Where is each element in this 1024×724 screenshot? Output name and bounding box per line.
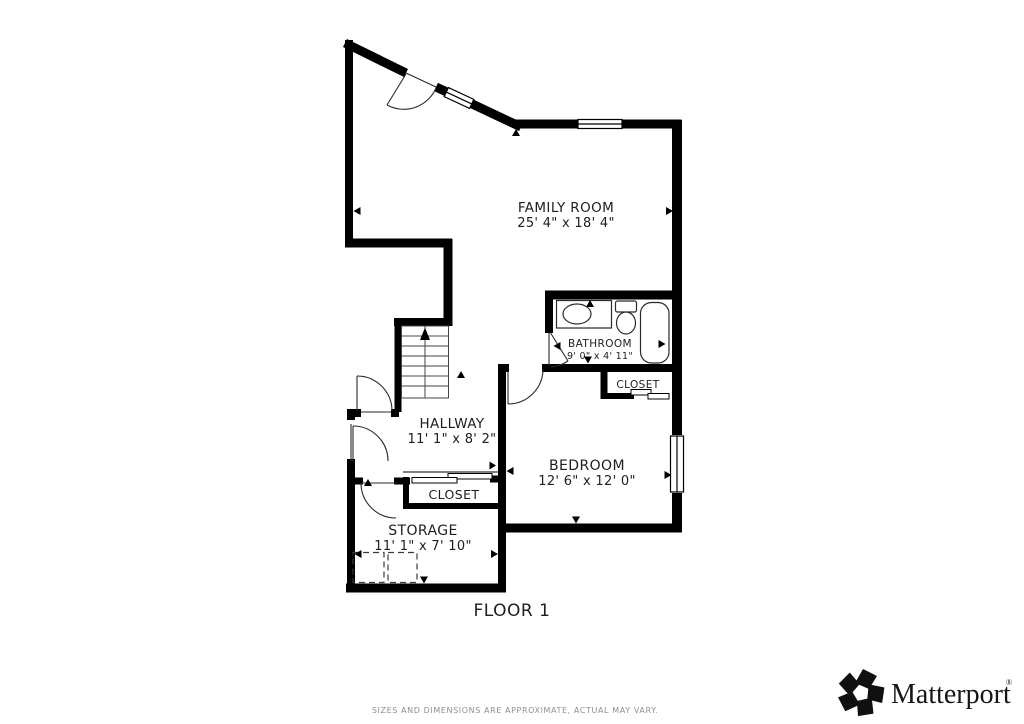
toilet-icon: [616, 301, 637, 334]
doors: [351, 73, 568, 518]
sliding-door-icon-hall-closet: [403, 472, 500, 483]
disclaimer-text: SIZES AND DIMENSIONS ARE APPROXIMATE, AC…: [372, 706, 658, 715]
door-arc-icon-bathroom: [549, 332, 568, 367]
dimension-arrow-icon: [666, 207, 673, 215]
bathtub-icon: [641, 303, 670, 364]
registered-trademark-icon: ®: [1006, 678, 1012, 687]
room-dims-hallway: 11' 1" x 8' 2": [408, 432, 497, 447]
door-arc-icon-hallway-upper: [357, 376, 392, 412]
door-arc-icon-family-entry: [387, 73, 436, 109]
room-dims-family-room: 25' 4" x 18' 4": [517, 216, 614, 231]
room-label-bathroom-closet: CLOSET: [616, 379, 659, 391]
window-icon-right: [671, 436, 684, 492]
room-label-storage: STORAGE: [388, 523, 457, 539]
matterport-logo-text: Matterport: [891, 679, 1011, 710]
utility-boxes: [353, 553, 417, 583]
room-label-hallway-closet: CLOSET: [429, 487, 480, 502]
window-icon-top: [578, 120, 622, 129]
window-icon-diagonal: [444, 88, 474, 109]
room-label-bathroom: BATHROOM: [568, 338, 632, 350]
dimension-arrow-icon: [572, 517, 580, 524]
room-label-bedroom: BEDROOM: [549, 458, 625, 474]
dimension-arrow-icon: [457, 371, 465, 378]
door-arc-icon-storage: [361, 483, 396, 518]
dimension-arrow-icon: [491, 550, 498, 558]
dimension-arrow-icon: [507, 467, 514, 475]
utility-box-icon: [388, 553, 417, 583]
door-arc-icon-hallway-lower: [351, 424, 388, 461]
dimension-arrow-icon: [355, 550, 362, 558]
room-dims-bathroom: 9' 0" x 4' 11": [567, 351, 633, 362]
utility-box-icon: [353, 553, 384, 583]
room-dims-bedroom: 12' 6" x 12' 0": [538, 474, 635, 489]
floor-label: FLOOR 1: [474, 601, 551, 621]
staircase-icon: [402, 326, 449, 398]
dimension-arrow-icon: [354, 207, 361, 215]
door-arc-icon-bedroom: [508, 369, 543, 404]
room-label-hallway: HALLWAY: [419, 416, 484, 432]
matterport-pinwheel-icon: [834, 669, 889, 722]
floorplan-page: FAMILY ROOM 25' 4" x 18' 4" BATHROOM 9' …: [0, 0, 1024, 724]
dimension-arrow-icon: [420, 577, 428, 584]
room-dims-storage: 11' 1" x 7' 10": [374, 539, 471, 554]
matterport-logo: Matterport ®: [834, 669, 1012, 722]
dimension-arrow-icon: [490, 462, 497, 470]
room-label-family-room: FAMILY ROOM: [518, 200, 614, 216]
sink-icon: [557, 301, 612, 329]
floorplan-canvas: FAMILY ROOM 25' 4" x 18' 4" BATHROOM 9' …: [0, 0, 1024, 724]
